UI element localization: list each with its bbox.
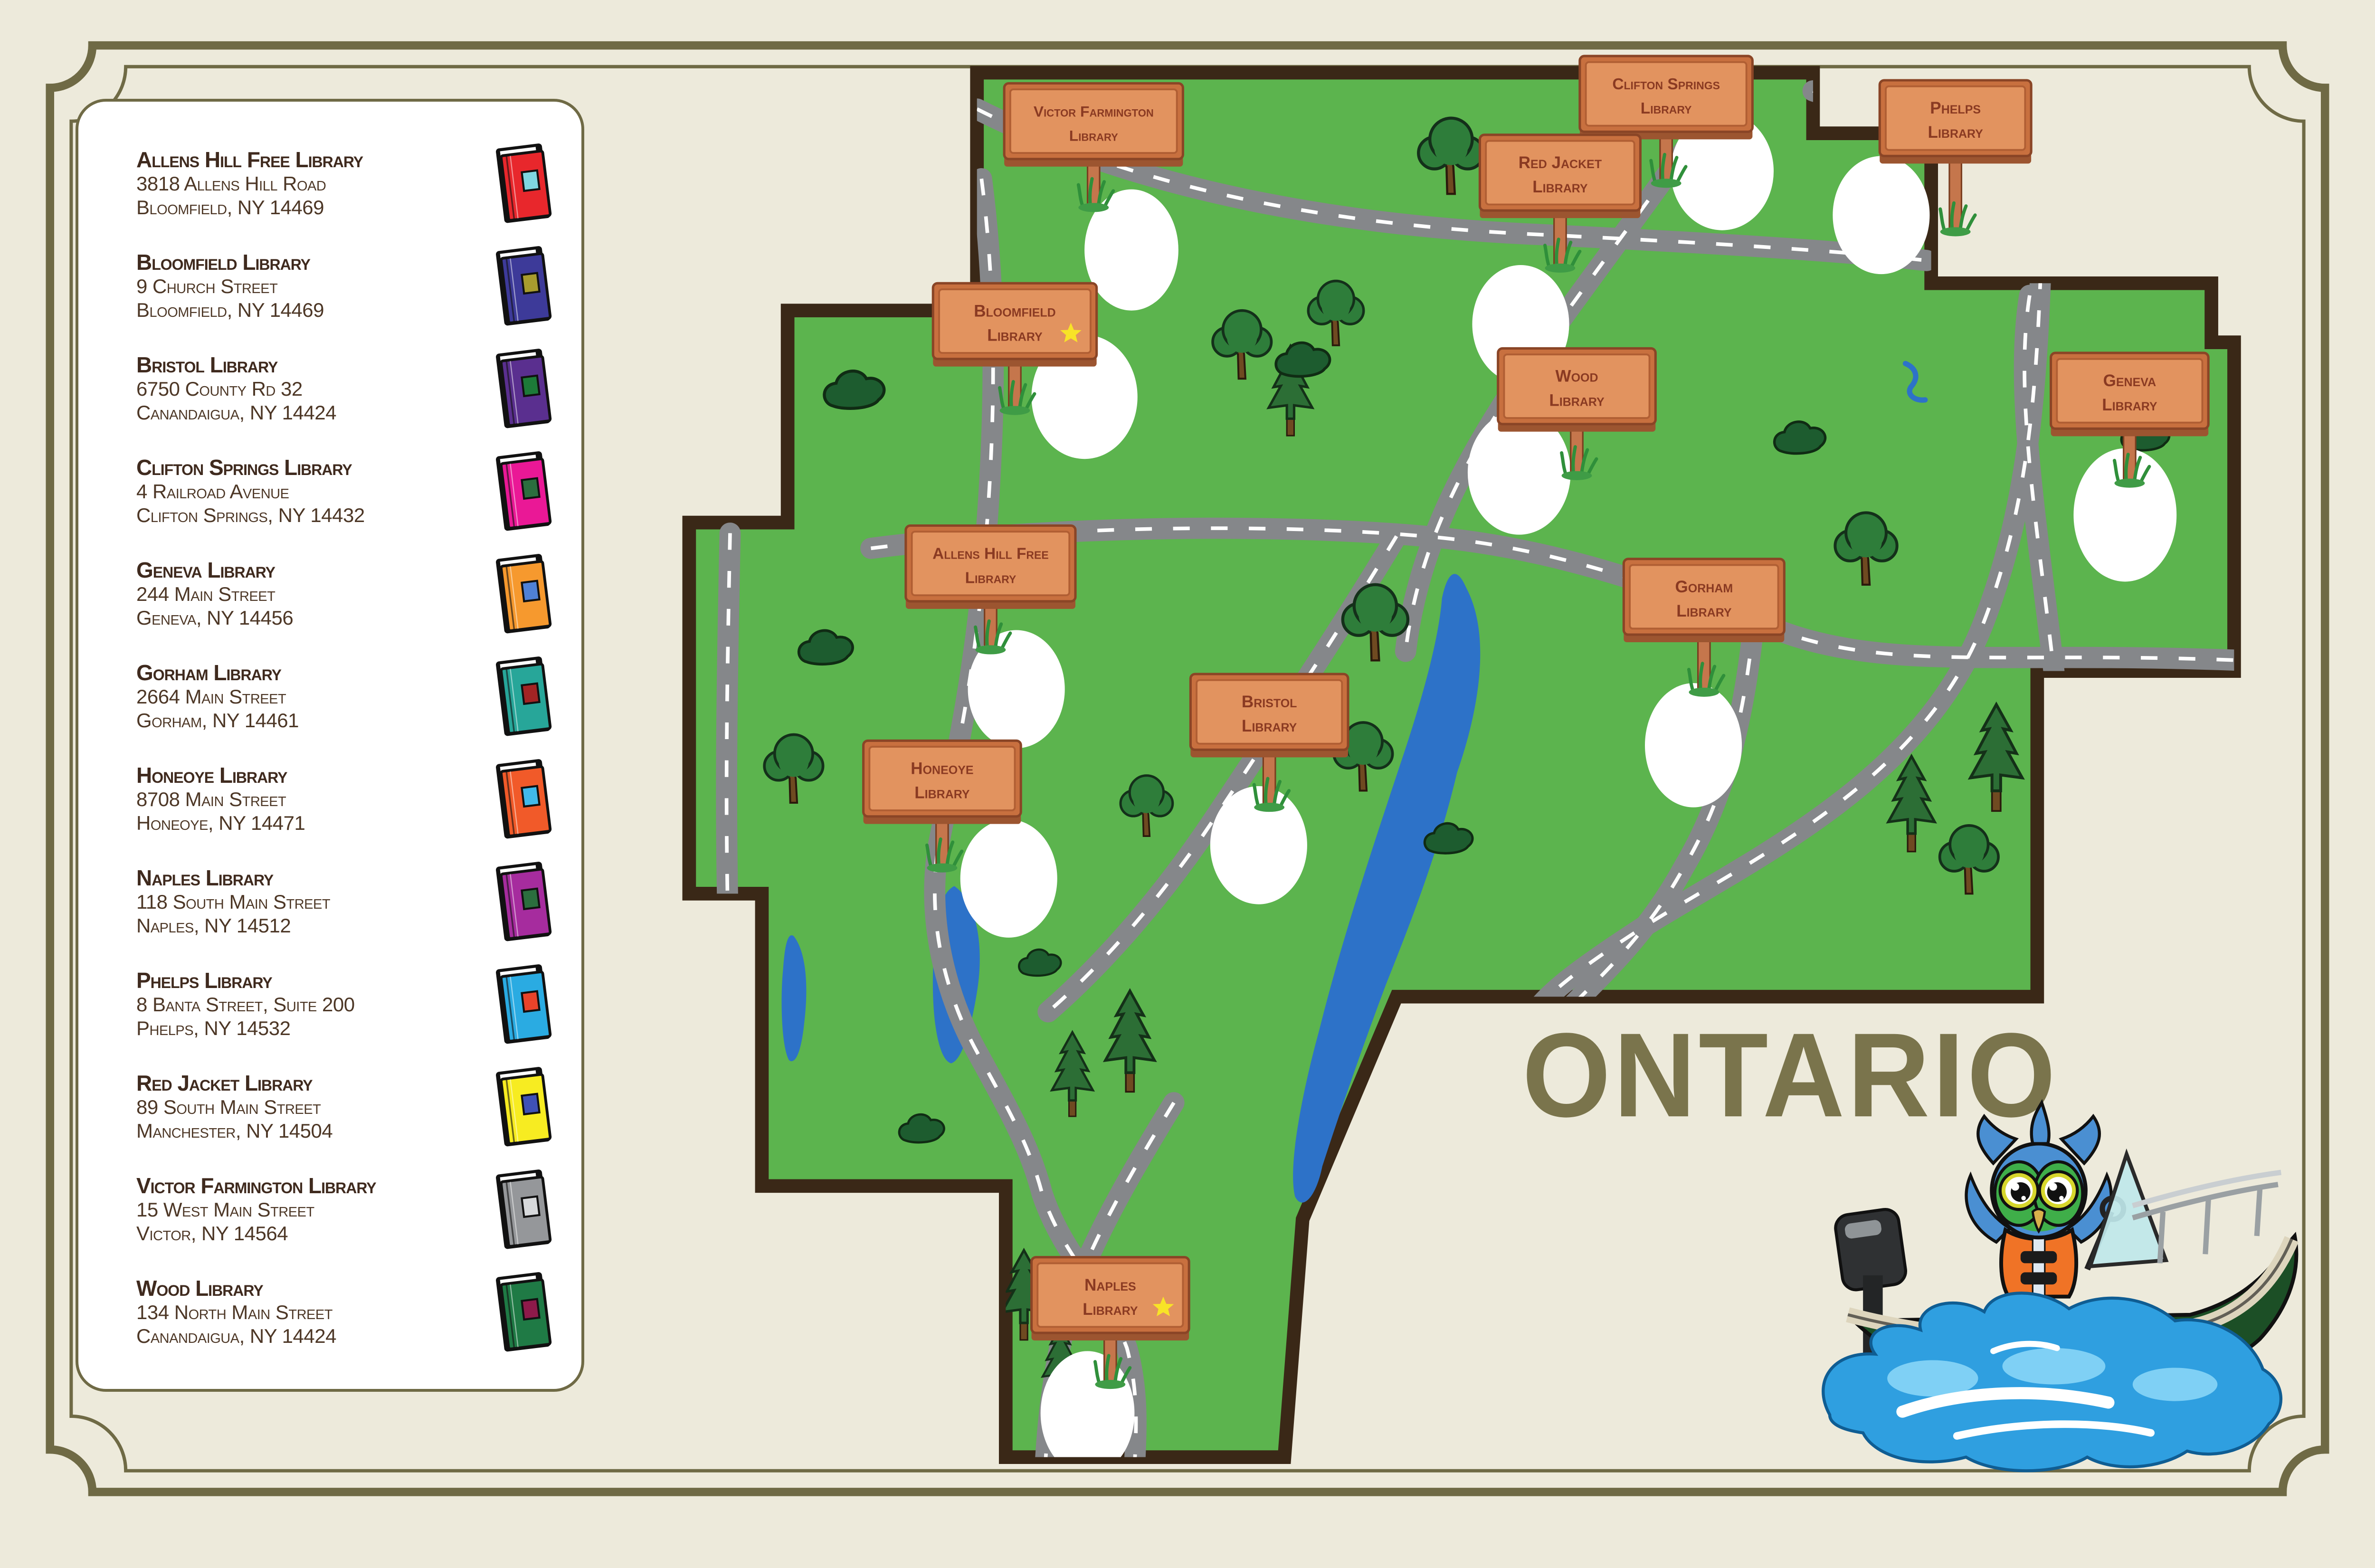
- legend-item-text: Naples Library118 South Main StreetNaple…: [136, 865, 330, 938]
- svg-text:Library: Library: [987, 326, 1043, 344]
- legend-item: Bristol Library6750 County Rd 32Canandai…: [136, 337, 555, 440]
- svg-text:Library: Library: [1083, 1300, 1138, 1319]
- svg-text:Allens Hill Free: Allens Hill Free: [932, 545, 1049, 563]
- legend-item: Bloomfield Library9 Church StreetBloomfi…: [136, 235, 555, 337]
- book-icon: [489, 242, 555, 330]
- library-address-line2: Bloomfield, NY 14469: [136, 298, 324, 322]
- legend-item-text: Gorham Library2664 Main StreetGorham, NY…: [136, 660, 299, 732]
- library-list: Allens Hill Free Library3818 Allens Hill…: [136, 132, 555, 1363]
- svg-text:Geneva: Geneva: [2103, 371, 2156, 390]
- svg-text:Library: Library: [1676, 602, 1732, 620]
- svg-text:Red Jacket: Red Jacket: [1519, 153, 1602, 172]
- legend-item-text: Victor Farmington Library15 West Main St…: [136, 1173, 376, 1245]
- library-address-line1: 3818 Allens Hill Road: [136, 172, 363, 196]
- book-icon: [489, 1165, 555, 1254]
- library-address-line2: Geneva, NY 14456: [136, 606, 293, 630]
- svg-text:Library: Library: [1928, 123, 1984, 142]
- library-address-line2: Clifton Springs, NY 14432: [136, 504, 365, 527]
- legend-item: Honeoye Library8708 Main StreetHoneoye, …: [136, 748, 555, 850]
- svg-text:Honeoye: Honeoye: [911, 759, 973, 778]
- stamp-circle: [1833, 156, 1929, 274]
- library-address-line1: 8708 Main Street: [136, 788, 305, 811]
- svg-text:Phelps: Phelps: [1930, 99, 1981, 117]
- svg-text:Bristol: Bristol: [1242, 693, 1297, 711]
- library-name: Naples Library: [136, 865, 330, 890]
- svg-text:Naples: Naples: [1084, 1276, 1136, 1294]
- book-icon: [489, 755, 555, 843]
- book-icon: [489, 857, 555, 946]
- svg-text:Library: Library: [2102, 396, 2157, 414]
- library-address-line2: Phelps, NY 14532: [136, 1017, 355, 1040]
- stamp-circle: [1041, 1351, 1135, 1475]
- book-icon: [489, 447, 555, 535]
- legend-item: Gorham Library2664 Main StreetGorham, NY…: [136, 645, 555, 748]
- svg-text:Library: Library: [1549, 391, 1605, 410]
- legend-item-text: Clifton Springs Library4 Railroad Avenue…: [136, 455, 365, 527]
- book-icon: [489, 550, 555, 638]
- svg-text:Clifton Springs: Clifton Springs: [1612, 76, 1720, 93]
- book-icon: [489, 1063, 555, 1151]
- library-address-line2: Honeoye, NY 14471: [136, 811, 305, 835]
- stamp-circle: [1645, 683, 1742, 807]
- legend-item: Wood Library134 North Main StreetCananda…: [136, 1261, 555, 1363]
- library-legend-panel: Allens Hill Free Library3818 Allens Hill…: [76, 99, 584, 1392]
- library-name: Allens Hill Free Library: [136, 147, 363, 172]
- library-address-line1: 2664 Main Street: [136, 685, 299, 709]
- library-address-line2: Victor, NY 14564: [136, 1222, 376, 1245]
- svg-text:Library: Library: [1641, 100, 1692, 117]
- library-address-line2: Bloomfield, NY 14469: [136, 196, 363, 219]
- library-name: Red Jacket Library: [136, 1071, 332, 1095]
- svg-text:Library: Library: [1532, 178, 1588, 196]
- library-name: Geneva Library: [136, 558, 293, 582]
- book-icon: [489, 139, 555, 228]
- legend-item: Phelps Library8 Banta Street, Suite 200P…: [136, 953, 555, 1055]
- library-address-line2: Manchester, NY 14504: [136, 1119, 332, 1143]
- svg-text:Library: Library: [914, 783, 970, 802]
- svg-text:Gorham: Gorham: [1675, 578, 1733, 596]
- library-address-line1: 15 West Main Street: [136, 1198, 376, 1222]
- legend-item-text: Bloomfield Library9 Church StreetBloomfi…: [136, 250, 324, 322]
- book-icon: [489, 960, 555, 1048]
- library-name: Wood Library: [136, 1276, 336, 1301]
- legend-item-text: Honeoye Library8708 Main StreetHoneoye, …: [136, 763, 305, 835]
- library-address-line1: 118 South Main Street: [136, 890, 330, 914]
- library-address-line1: 9 Church Street: [136, 275, 324, 298]
- legend-item-text: Red Jacket Library89 South Main StreetMa…: [136, 1071, 332, 1143]
- library-address-line1: 8 Banta Street, Suite 200: [136, 993, 355, 1017]
- library-name: Honeoye Library: [136, 763, 305, 788]
- library-name: Phelps Library: [136, 968, 355, 993]
- legend-item-text: Bristol Library6750 County Rd 32Canandai…: [136, 352, 336, 425]
- library-address-line1: 134 North Main Street: [136, 1301, 336, 1324]
- library-address-line2: Canandaigua, NY 14424: [136, 1324, 336, 1348]
- svg-text:Victor Farmington: Victor Farmington: [1034, 103, 1154, 120]
- county-name-label: ONTARIO: [1522, 1008, 2059, 1142]
- svg-text:Bloomfield: Bloomfield: [974, 302, 1056, 320]
- library-name: Gorham Library: [136, 660, 299, 685]
- library-address-line1: 89 South Main Street: [136, 1095, 332, 1119]
- svg-text:Library: Library: [965, 570, 1016, 587]
- legend-item-text: Geneva Library244 Main StreetGeneva, NY …: [136, 558, 293, 630]
- legend-item-text: Phelps Library8 Banta Street, Suite 200P…: [136, 968, 355, 1040]
- library-address-line2: Canandaigua, NY 14424: [136, 401, 336, 425]
- library-name: Bloomfield Library: [136, 250, 324, 275]
- legend-item-text: Allens Hill Free Library3818 Allens Hill…: [136, 147, 363, 219]
- library-address-line2: Gorham, NY 14461: [136, 709, 299, 732]
- svg-text:Library: Library: [1069, 127, 1118, 144]
- library-address-line2: Naples, NY 14512: [136, 914, 330, 938]
- legend-item: Allens Hill Free Library3818 Allens Hill…: [136, 132, 555, 235]
- legend-item: Victor Farmington Library15 West Main St…: [136, 1158, 555, 1261]
- svg-text:Wood: Wood: [1555, 367, 1598, 386]
- library-name: Clifton Springs Library: [136, 455, 365, 480]
- legend-item: Naples Library118 South Main StreetNaple…: [136, 850, 555, 953]
- library-address-line1: 244 Main Street: [136, 582, 293, 606]
- book-icon: [489, 344, 555, 433]
- library-address-line1: 6750 County Rd 32: [136, 377, 336, 401]
- legend-item: Red Jacket Library89 South Main StreetMa…: [136, 1055, 555, 1158]
- book-icon: [489, 1268, 555, 1356]
- owl-boat-mascot: [1823, 1102, 2296, 1471]
- legend-item: Geneva Library244 Main StreetGeneva, NY …: [136, 542, 555, 645]
- book-icon: [489, 652, 555, 741]
- poster-background: Victor FarmingtonLibraryClifton SpringsL…: [0, 0, 2375, 1568]
- library-name: Bristol Library: [136, 352, 336, 377]
- svg-text:Library: Library: [1242, 717, 1297, 735]
- library-address-line1: 4 Railroad Avenue: [136, 480, 365, 504]
- stamp-circle: [960, 819, 1057, 938]
- legend-item-text: Wood Library134 North Main StreetCananda…: [136, 1276, 336, 1348]
- legend-item: Clifton Springs Library4 Railroad Avenue…: [136, 440, 555, 542]
- library-name: Victor Farmington Library: [136, 1173, 376, 1198]
